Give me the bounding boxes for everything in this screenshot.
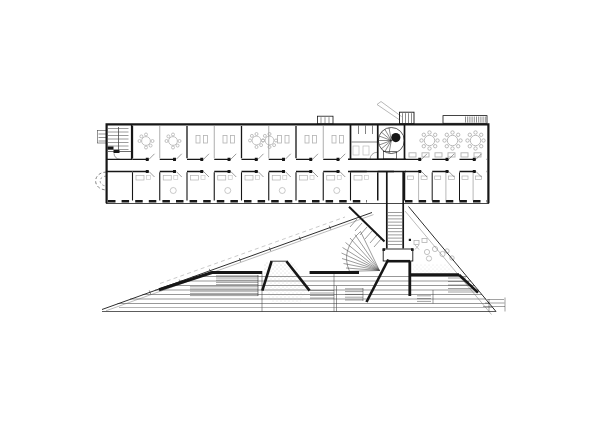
floor-plan-page (0, 0, 600, 424)
stipple-spill (266, 291, 306, 304)
shaft-circle (391, 133, 400, 142)
floor-plan (0, 0, 600, 424)
paper-background (0, 0, 600, 424)
